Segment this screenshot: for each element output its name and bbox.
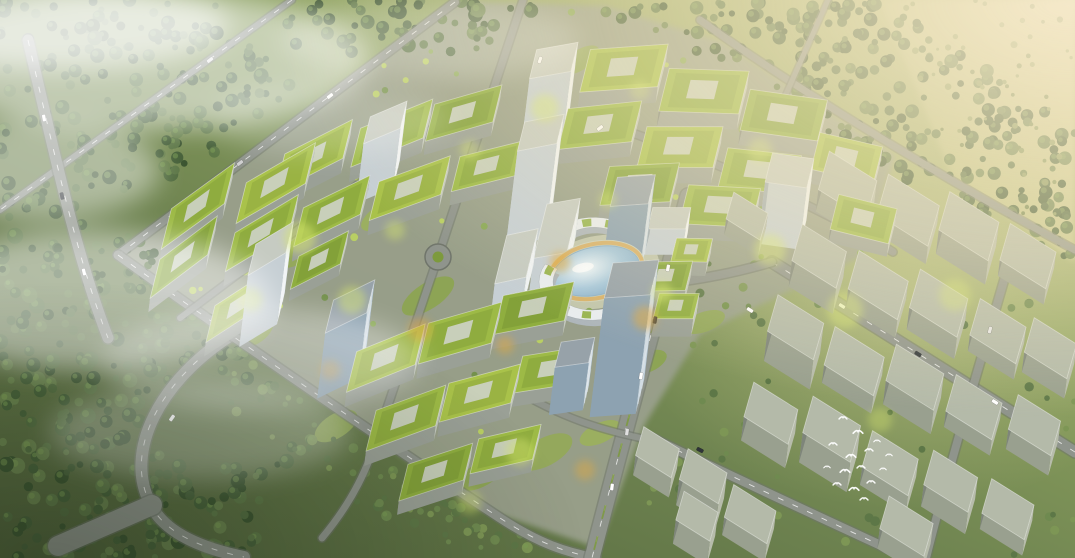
scene-svg bbox=[0, 0, 1075, 558]
vignette bbox=[0, 0, 1075, 558]
atmosphere-layer bbox=[0, 0, 1075, 558]
aerial-render-image bbox=[0, 0, 1075, 558]
